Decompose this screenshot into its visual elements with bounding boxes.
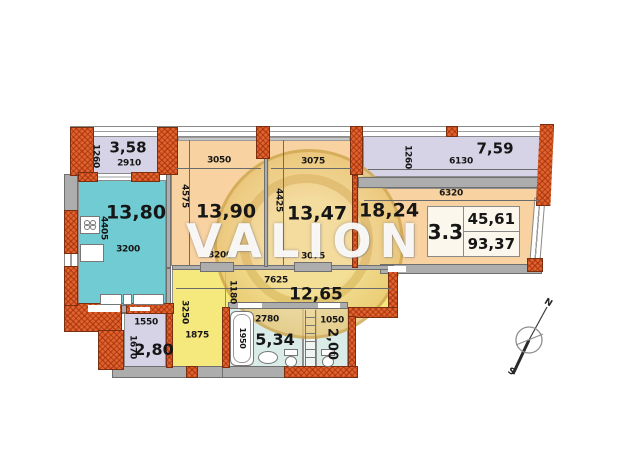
unit-number: 3.3 <box>428 207 464 256</box>
sink <box>258 351 278 364</box>
wall-arm-bathroom <box>222 307 230 368</box>
dimline-bedroom1-top <box>175 168 261 169</box>
pillar-bedroom2-balcony <box>350 126 363 175</box>
bathroom-area: 5,34 <box>255 332 294 348</box>
stove <box>80 216 100 234</box>
bathroom-dim-w: 2780 <box>255 316 279 325</box>
counter-box-3 <box>133 294 164 305</box>
pillar-storage-bottom <box>186 366 198 378</box>
kitchen-dim-h: 4405 <box>99 216 108 240</box>
balcony-left-dim-h: 1260 <box>91 144 100 168</box>
wall-kitchen-left-top <box>64 174 78 212</box>
storage-dim-w: 1550 <box>134 319 158 328</box>
balcony-right-area: 7,59 <box>476 142 513 157</box>
window-balcony-sill <box>97 173 132 181</box>
pillar-balcony-right-top <box>446 126 458 137</box>
ladder-icon <box>305 310 316 366</box>
wall-corridor-right <box>388 270 398 310</box>
sill-orange-2 <box>131 172 160 182</box>
wc-area: 2,00 <box>326 328 339 360</box>
sill-orange-1 <box>78 172 98 182</box>
balcony-left-dim-w: 2910 <box>117 160 141 169</box>
balcony-right-dim-h: 1260 <box>403 145 412 169</box>
dimline-corridor <box>176 288 392 289</box>
counter-box-2 <box>123 294 132 305</box>
living-dim-top: 6320 <box>439 190 463 199</box>
toilet-bathroom-tank <box>284 349 298 356</box>
corridor-area: 12,65 <box>289 287 343 304</box>
kitchen-dim-w: 3200 <box>116 246 140 255</box>
window-band-top <box>70 126 541 137</box>
storage-area: 2,80 <box>134 342 173 358</box>
corridor-arm-dim-w: 1875 <box>185 332 209 341</box>
corridor-arm-dim-h: 3250 <box>180 300 189 324</box>
wall-kitchen-bedroom1 <box>166 174 171 268</box>
kitchen-area: 13,80 <box>106 204 166 223</box>
pillar-bedroom1-bedroom2 <box>256 126 270 159</box>
bedroom1-dim-h: 4575 <box>180 184 189 208</box>
bedroom2-dim-top: 3075 <box>301 158 325 167</box>
wall-arm-storage <box>166 308 173 368</box>
corridor-dim-top: 7625 <box>264 277 288 286</box>
bathtub-dim: 1950 <box>238 327 246 348</box>
wall-kitchen-left-2 <box>64 266 78 306</box>
wall-balcony-living <box>358 177 543 188</box>
counter-box-1 <box>100 294 122 305</box>
door-storage <box>130 307 150 311</box>
living-area-total: 45,61 <box>464 207 519 232</box>
unit-info-table: 3.3 45,61 93,37 <box>427 206 520 257</box>
floor-plan: 3,58 1260 2910 13,80 4405 3200 3050 13,9… <box>0 0 630 475</box>
toilet-bathroom-bowl <box>285 356 297 367</box>
wall-mass-bottom-left-2 <box>98 330 124 370</box>
door-bathroom <box>238 303 262 308</box>
total-area: 93,37 <box>464 232 519 256</box>
wall-kitchen-left-1 <box>64 210 78 254</box>
bedroom2-dim-h: 4425 <box>274 188 283 212</box>
corridor-dim-h: 1180 <box>228 280 237 304</box>
dimline-balcony-right <box>368 169 538 170</box>
watermark-text: VALION <box>186 214 426 268</box>
balcony-right-dim-w: 6130 <box>449 158 473 167</box>
wc-dim-w: 1050 <box>320 317 344 326</box>
wall-living-right-bottom <box>527 258 543 272</box>
wall-wc-right <box>348 316 356 370</box>
wall-bath-bottom-gray <box>222 366 286 378</box>
wall-bath-bottom-orange <box>284 366 358 378</box>
room-kitchen <box>78 180 166 306</box>
door-kitchen <box>88 305 120 312</box>
balcony-left-area: 3,58 <box>109 141 146 156</box>
bedroom1-dim-top: 3050 <box>207 157 231 166</box>
kitchen-sink-counter <box>80 244 104 262</box>
